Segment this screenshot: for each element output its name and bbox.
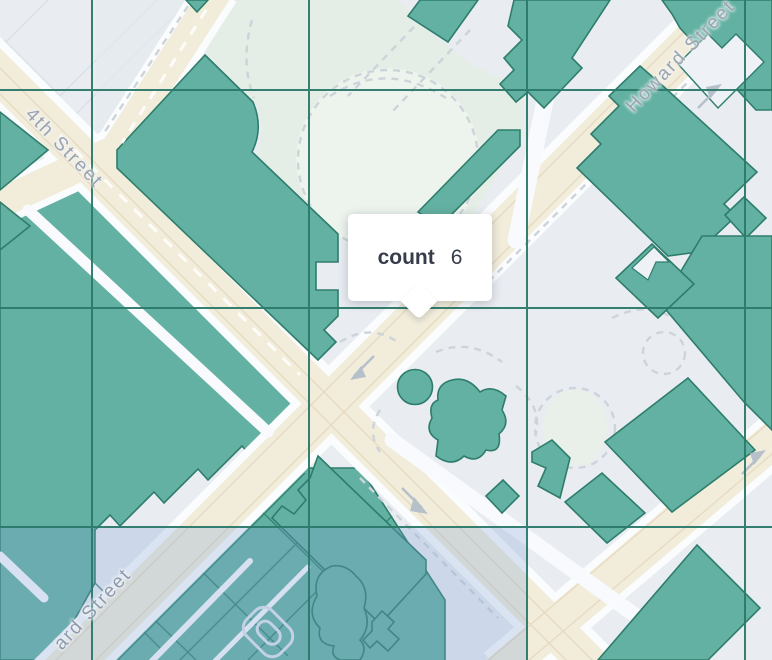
selected-cell-overlay[interactable] — [0, 527, 527, 660]
map-tooltip: count 6 — [348, 214, 492, 301]
tooltip-label: count — [378, 246, 435, 270]
tooltip-value: 6 — [451, 246, 463, 270]
map-canvas[interactable] — [0, 0, 772, 660]
building-circle — [398, 370, 433, 405]
map-viewport[interactable]: 4th Street Howard Street ard Street coun… — [0, 0, 772, 660]
building-blob — [429, 379, 506, 462]
